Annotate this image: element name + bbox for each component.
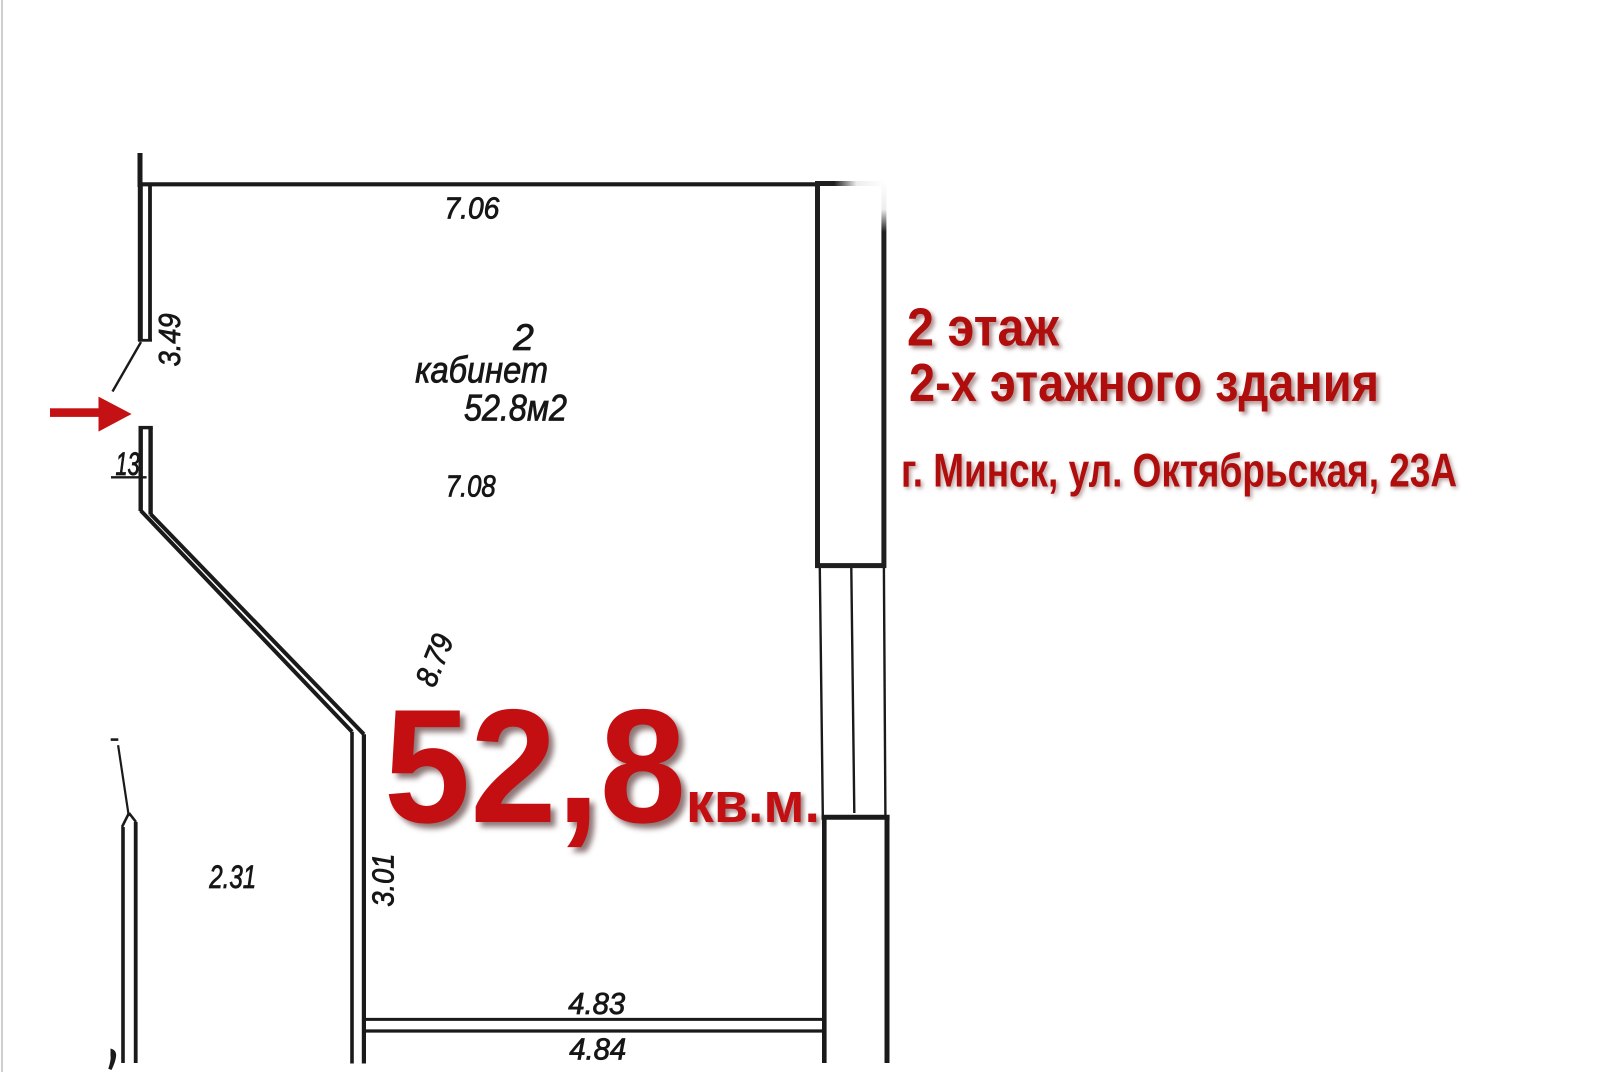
svg-text:7.06: 7.06 (444, 192, 499, 226)
svg-text:кабинет: кабинет (415, 350, 548, 391)
svg-text:2.31: 2.31 (208, 859, 256, 895)
svg-text:4.84: 4.84 (569, 1033, 626, 1067)
svg-text:кв.м.: кв.м. (686, 771, 820, 835)
svg-text:3.49: 3.49 (152, 313, 187, 366)
svg-text:2-х этажного здания: 2-х этажного здания (909, 354, 1379, 413)
svg-text:г. Минск, ул. Октябрьская, 23А: г. Минск, ул. Октябрьская, 23А (901, 445, 1457, 498)
svg-text:52.8м2: 52.8м2 (464, 388, 567, 429)
svg-text:52,8: 52,8 (384, 676, 686, 857)
svg-text:2 этаж: 2 этаж (907, 299, 1060, 358)
svg-text:4.83: 4.83 (568, 987, 625, 1021)
svg-text:7.08: 7.08 (446, 469, 497, 504)
svg-text:3.01: 3.01 (366, 854, 401, 907)
